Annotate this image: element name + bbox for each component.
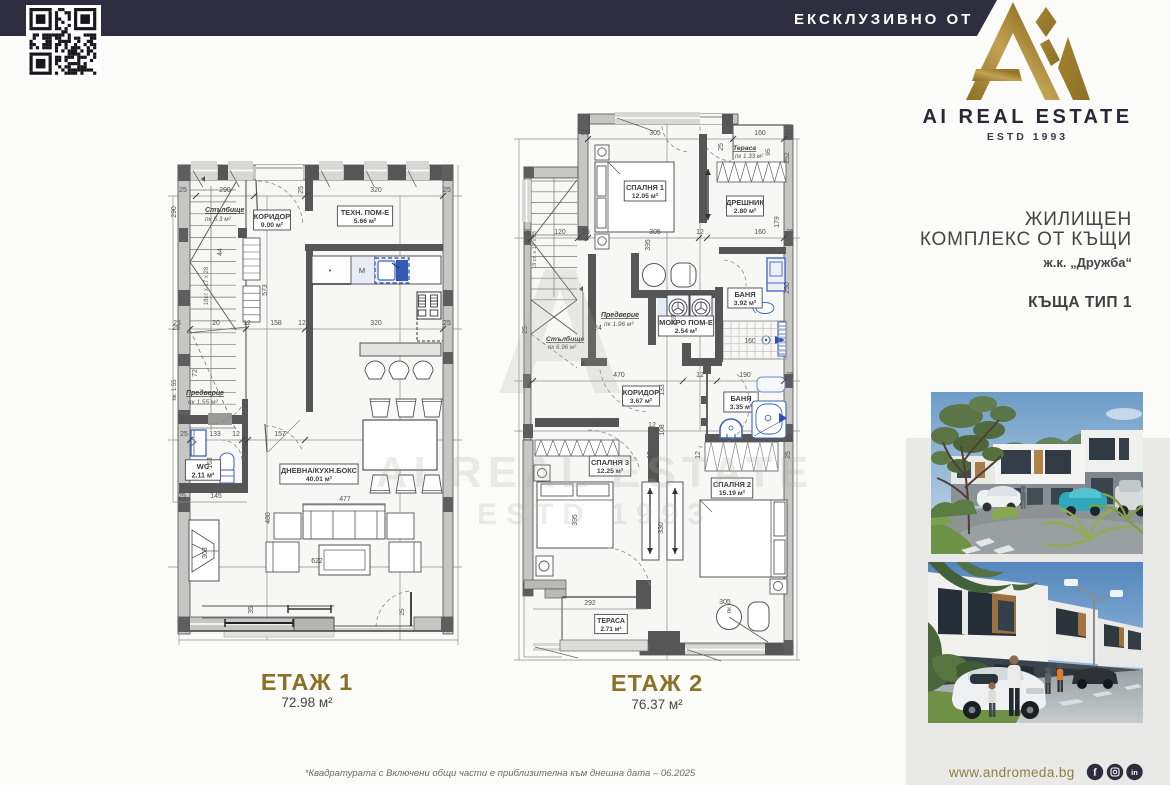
svg-text:290: 290	[171, 206, 178, 218]
svg-text:25: 25	[786, 229, 794, 236]
svg-text:БАНЯ: БАНЯ	[734, 290, 755, 299]
svg-text:12: 12	[232, 431, 240, 438]
svg-text:СПАЛНЯ 1: СПАЛНЯ 1	[626, 183, 664, 192]
svg-text:35: 35	[248, 606, 255, 614]
svg-text:25: 25	[298, 186, 305, 194]
svg-text:25: 25	[178, 493, 186, 500]
svg-text:3.92 м²: 3.92 м²	[734, 300, 757, 307]
svg-text:250: 250	[784, 282, 791, 294]
svg-text:12.05 м²: 12.05 м²	[632, 193, 659, 200]
svg-text:160: 160	[754, 229, 766, 236]
svg-text:2.11 м²: 2.11 м²	[192, 472, 215, 479]
svg-text:25: 25	[399, 608, 406, 616]
svg-text:25: 25	[179, 187, 187, 194]
svg-text:40.01 м²: 40.01 м²	[306, 476, 333, 483]
svg-text:145: 145	[210, 493, 222, 500]
svg-text:305: 305	[719, 599, 731, 606]
svg-text:290: 290	[219, 187, 231, 194]
svg-text:2.80 м²: 2.80 м²	[734, 208, 757, 215]
svg-text:25: 25	[180, 431, 188, 438]
svg-text:72: 72	[192, 369, 199, 377]
svg-text:20: 20	[212, 320, 220, 327]
svg-text:190: 190	[739, 372, 751, 379]
svg-text:КОРИДОР: КОРИДОР	[254, 212, 291, 221]
svg-text:160: 160	[754, 130, 766, 137]
svg-text:95: 95	[765, 148, 772, 156]
svg-text:12: 12	[243, 320, 251, 327]
svg-text:480: 480	[265, 512, 272, 524]
svg-text:303: 303	[202, 547, 209, 559]
svg-text:12: 12	[298, 320, 306, 327]
svg-text:Предверие: Предверие	[186, 389, 224, 397]
svg-text:25: 25	[581, 130, 589, 137]
svg-text:292: 292	[584, 600, 596, 607]
svg-text:ТЕРАСА: ТЕРАСА	[597, 618, 625, 625]
svg-text:133: 133	[209, 431, 221, 438]
svg-text:320: 320	[370, 320, 382, 327]
svg-text:ТЕХН. ПОМ-Е: ТЕХН. ПОМ-Е	[341, 208, 389, 217]
svg-text:2.71 м²: 2.71 м²	[600, 626, 621, 633]
svg-text:ДРЕШНИК: ДРЕШНИК	[726, 198, 764, 207]
svg-text:Тераса: Тераса	[733, 145, 756, 152]
svg-text:18ст х 17 х 28: 18ст х 17 х 28	[204, 266, 210, 305]
svg-text:179: 179	[774, 216, 781, 228]
svg-text:25: 25	[786, 372, 794, 379]
svg-text:305: 305	[649, 130, 661, 137]
svg-text:Стълбище: Стълбище	[205, 206, 244, 214]
svg-text:12: 12	[785, 130, 793, 137]
svg-text:157: 157	[274, 431, 286, 438]
svg-text:пк 1.33 м²: пк 1.33 м²	[735, 153, 764, 160]
svg-text:пк: пк	[727, 607, 733, 613]
svg-text:25: 25	[172, 325, 180, 332]
svg-text:5.66 м²: 5.66 м²	[354, 218, 377, 225]
svg-text:622: 622	[311, 558, 323, 565]
svg-text:44: 44	[217, 248, 224, 256]
svg-text:25: 25	[443, 187, 451, 194]
svg-text:пк. 1.55: пк. 1.55	[172, 379, 178, 401]
svg-text:9.00 м²: 9.00 м²	[261, 222, 284, 229]
svg-text:25: 25	[718, 143, 725, 151]
svg-text:163: 163	[207, 457, 214, 469]
svg-text:573: 573	[262, 284, 269, 296]
svg-text:252: 252	[784, 152, 791, 164]
svg-text:320: 320	[370, 187, 382, 194]
svg-text:М: М	[359, 266, 365, 275]
svg-text:158: 158	[270, 320, 282, 327]
svg-text:пк 5.3 м²: пк 5.3 м²	[205, 216, 232, 223]
svg-text:пк 1.55 м²: пк 1.55 м²	[188, 399, 218, 406]
